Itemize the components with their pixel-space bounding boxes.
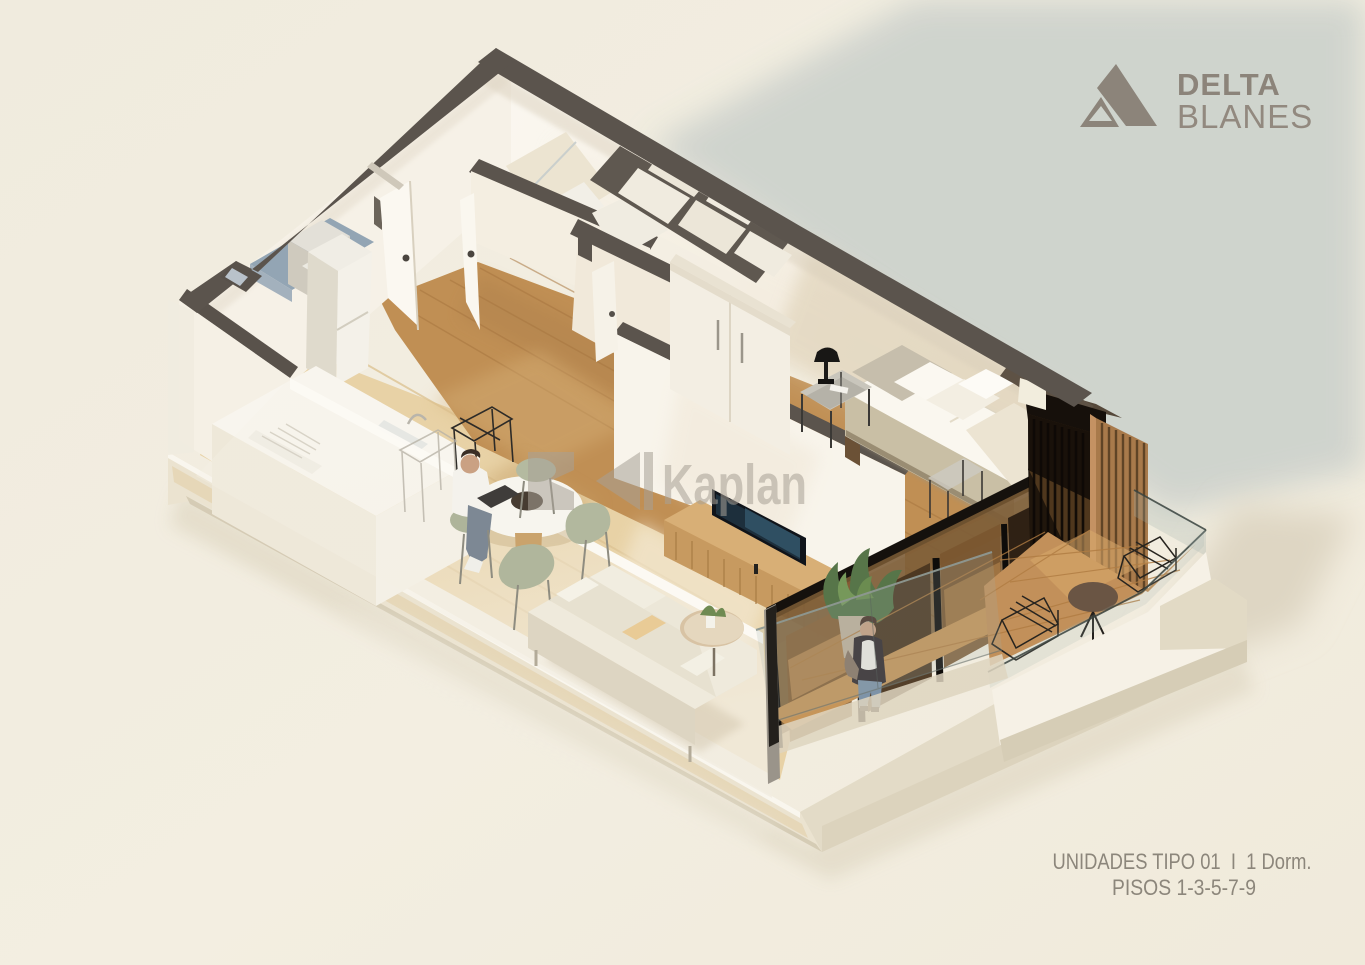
svg-text:PISOS 1-3-5-7-9: PISOS 1-3-5-7-9 xyxy=(1112,875,1256,900)
svg-text:UNIDADES TIPO 01 I 1 Dorm.: UNIDADES TIPO 01 I 1 Dorm. xyxy=(1053,849,1312,874)
svg-text:DELTA: DELTA xyxy=(1177,67,1281,102)
svg-text:Kaplan: Kaplan xyxy=(662,453,807,517)
svg-text:BLANES: BLANES xyxy=(1177,98,1313,135)
